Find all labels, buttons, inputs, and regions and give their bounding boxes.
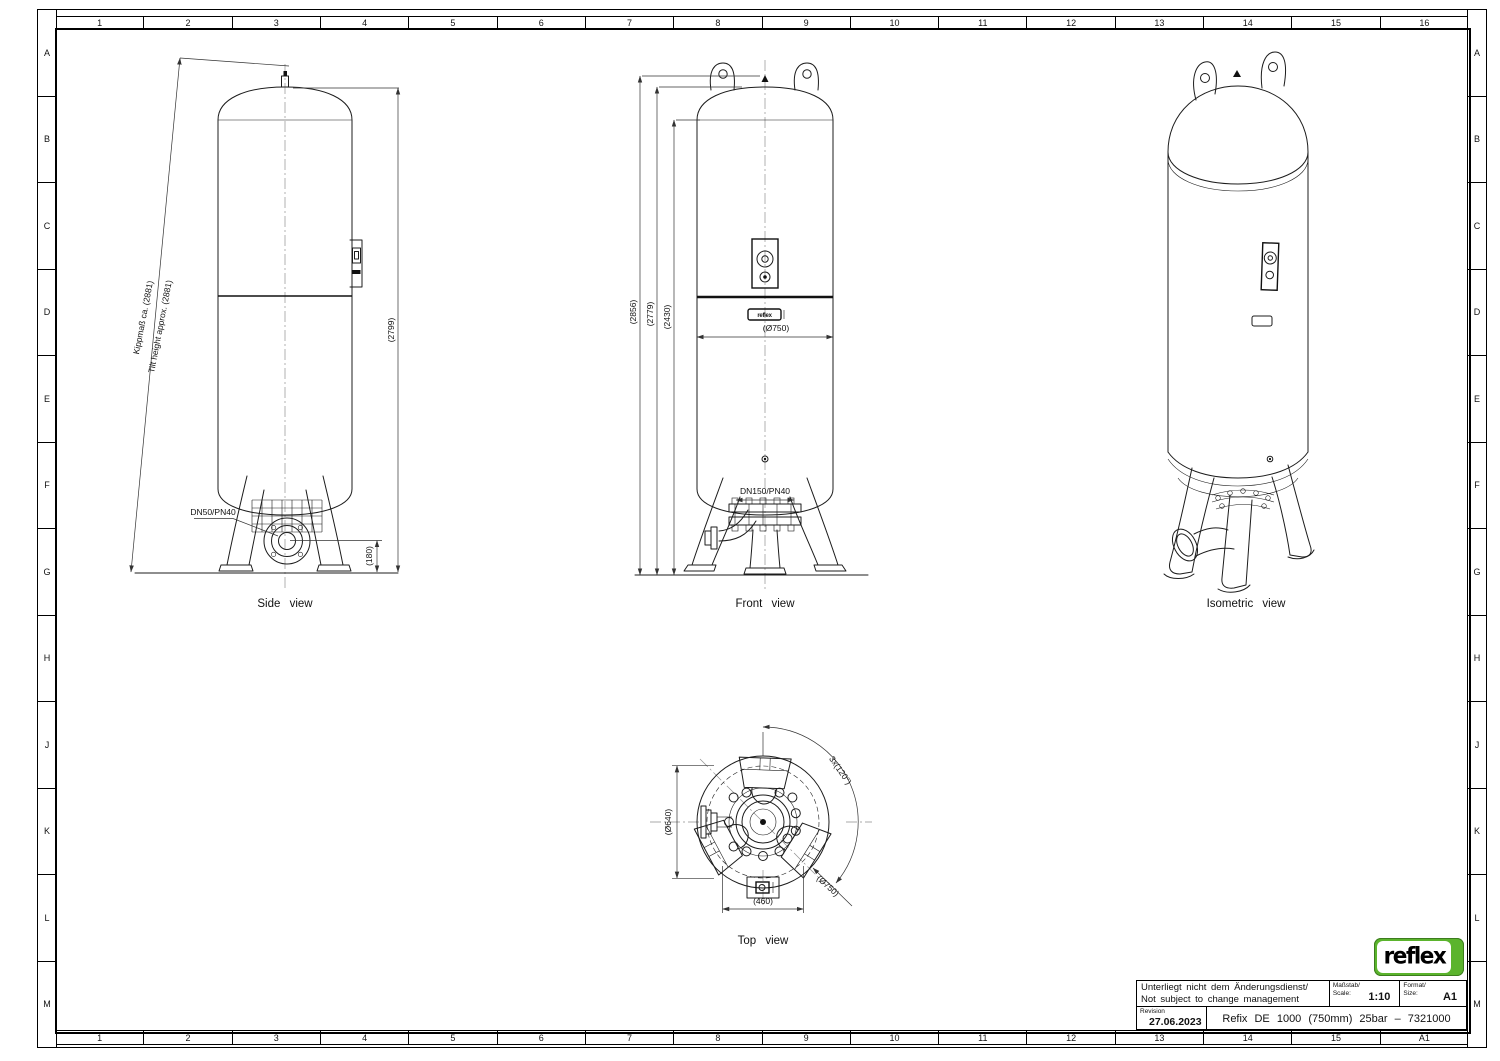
dim-front-h1: (2856) xyxy=(628,300,638,325)
dim-front-diameter: (Ø750) xyxy=(763,323,790,333)
dim-side-height: (2799) xyxy=(386,318,396,343)
front-elbow-pipe xyxy=(705,510,756,549)
top-legs xyxy=(694,757,831,878)
isometric-view-label: Isometric view xyxy=(1207,598,1287,610)
reflex-logo-text: reflex xyxy=(1383,945,1445,968)
isometric-view-drawing: Isometric view xyxy=(1164,52,1314,610)
top-side-nozzle xyxy=(701,806,732,838)
side-view-label: Side view xyxy=(257,598,313,610)
side-view-drawing: Kippmaß ca. (2881) Tilt height approx. (… xyxy=(131,58,399,610)
top-outer-diameter-dimension: (Ø750) xyxy=(813,868,852,906)
change-note-en: Not subject to change management xyxy=(1141,994,1325,1006)
top-view-label: Top view xyxy=(738,935,789,947)
revision-date: 27.06.2023 xyxy=(1149,1016,1202,1028)
format-label-de: Format/ xyxy=(1403,982,1466,990)
iso-top-valve xyxy=(1233,70,1241,77)
front-view-label: Front view xyxy=(735,598,795,610)
iso-fittings-plate xyxy=(1261,243,1279,291)
format-value: A1 xyxy=(1443,991,1457,1003)
vessel-drawing-canvas: Kippmaß ca. (2881) Tilt height approx. (… xyxy=(0,0,1500,1061)
title-block: Unterliegt nicht dem Änderungsdienst/ No… xyxy=(1136,980,1467,1030)
iso-bottom-flange-stack xyxy=(1212,489,1274,509)
dim-front-h2: (2779) xyxy=(645,302,655,327)
scale-cell: Maßstab/ Scale: 1:10 xyxy=(1329,981,1400,1006)
top-center-point xyxy=(760,819,766,825)
revision-label: Revision xyxy=(1137,1007,1206,1016)
top-view-drawing: (Ø640) (460) 3x(120°) (Ø750) Top view xyxy=(650,727,872,947)
revision-cell: Revision 27.06.2023 xyxy=(1137,1007,1206,1030)
scale-label-de: Maßstab/ xyxy=(1333,982,1400,990)
side-height-dimension: (2799) xyxy=(293,88,399,572)
dim-top-spacing: (460) xyxy=(753,896,773,906)
dim-front-h3: (2430) xyxy=(662,305,672,330)
change-management-note: Unterliegt nicht dem Änderungsdienst/ No… xyxy=(1137,981,1329,1006)
front-nameplate-text: reflex xyxy=(757,313,772,319)
engineering-drawing-sheet: 12345678910111213141516 1234567891011121… xyxy=(0,0,1500,1061)
dim-side-base: (180) xyxy=(364,546,374,566)
format-cell: Format/ Size: A1 xyxy=(1399,981,1466,1006)
reflex-logo: reflex xyxy=(1374,938,1464,976)
side-bottom-flange xyxy=(264,518,310,564)
dim-front-nozzle: DN150/PN40 xyxy=(740,486,790,496)
dim-top-bolt-circle: (Ø640) xyxy=(663,809,673,836)
dim-side-nozzle: DN50/PN40 xyxy=(190,507,236,517)
dim-top-angle: 3x(120°) xyxy=(827,754,854,786)
iso-nameplate xyxy=(1252,316,1272,326)
iso-drain-fitting xyxy=(1267,456,1273,462)
top-angle-dimension: 3x(120°) xyxy=(763,727,858,883)
iso-vessel-body xyxy=(1168,86,1308,497)
front-nameplate: reflex xyxy=(748,309,784,320)
front-view-drawing: reflex (Ø750) xyxy=(628,60,868,610)
scale-value: 1:10 xyxy=(1368,991,1390,1003)
change-note-de: Unterliegt nicht dem Änderungsdienst/ xyxy=(1141,982,1325,994)
side-bottom-flange-stack xyxy=(252,500,322,532)
dim-top-outer: (Ø750) xyxy=(815,873,841,898)
side-tilt-dimension: Kippmaß ca. (2881) Tilt height approx. (… xyxy=(131,58,289,572)
reflex-logo-plate: reflex xyxy=(1377,941,1451,973)
front-top-valve xyxy=(762,75,769,82)
drawing-title: Refix DE 1000 (750mm) 25bar – 7321000 xyxy=(1206,1007,1466,1030)
